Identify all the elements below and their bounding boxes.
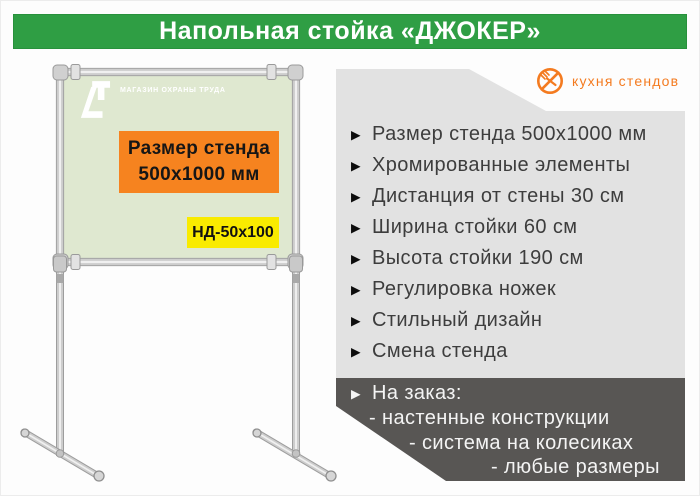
triangle-bullet-icon: ▶ (351, 282, 372, 297)
custom-order-item: - настенные конструкции (369, 406, 610, 430)
custom-order-item: - система на колесиках (409, 431, 633, 455)
poster: Напольная стойка «ДЖОКЕР» (0, 0, 700, 496)
stand-size-line2: 500x1000 мм (119, 162, 279, 188)
custom-order-panel: ▶ На заказ: - настенные конструкции - си… (336, 378, 685, 481)
feature-item: ▶ Стильный дизайн (351, 305, 647, 336)
custom-order-title: На заказ: (372, 382, 462, 405)
custom-order-title-row: ▶ На заказ: (351, 381, 462, 405)
feature-item: ▶ Высота стойки 190 см (351, 243, 647, 274)
features-list: ▶ Размер стенда 500x1000 мм ▶ Хромирован… (351, 119, 647, 367)
triangle-bullet-icon: ▶ (351, 251, 372, 266)
crossed-fork-icon (535, 66, 565, 96)
feature-item: ▶ Смена стенда (351, 336, 647, 367)
safety-shop-logo-icon (79, 80, 111, 120)
stand-model-label: НД-50x100 (187, 217, 279, 248)
triangle-bullet-icon: ▶ (351, 344, 372, 359)
left-post (54, 256, 67, 456)
triangle-bullet-icon: ▶ (351, 220, 372, 235)
custom-order-item: - любые размеры (491, 455, 660, 479)
board-logo-text: МАГАЗИН ОХРАНЫ ТРУДА (120, 87, 226, 94)
feature-item: ▶ Дистанция от стены 30 см (351, 181, 647, 212)
floor-stand-illustration (1, 1, 341, 496)
brand-logo: кухня стендов (535, 65, 679, 97)
feature-item: ▶ Регулировка ножек (351, 274, 647, 305)
stand-size-label: Размер стенда 500x1000 мм (119, 131, 279, 193)
feature-item: ▶ Хромированные элементы (351, 150, 647, 181)
triangle-bullet-icon: ▶ (351, 386, 372, 401)
stand-size-line1: Размер стенда (119, 136, 279, 162)
brand-name: кухня стендов (572, 73, 679, 89)
feature-item: ▶ Ширина стойки 60 см (351, 212, 647, 243)
triangle-bullet-icon: ▶ (351, 313, 372, 328)
triangle-bullet-icon: ▶ (351, 158, 372, 173)
triangle-bullet-icon: ▶ (351, 189, 372, 204)
triangle-bullet-icon: ▶ (351, 127, 372, 142)
right-post (290, 256, 303, 456)
feature-item: ▶ Размер стенда 500x1000 мм (351, 119, 647, 150)
features-panel: ▶ Размер стенда 500x1000 мм ▶ Хромирован… (336, 69, 685, 378)
board-logo: МАГАЗИН ОХРАНЫ ТРУДА (79, 80, 226, 120)
